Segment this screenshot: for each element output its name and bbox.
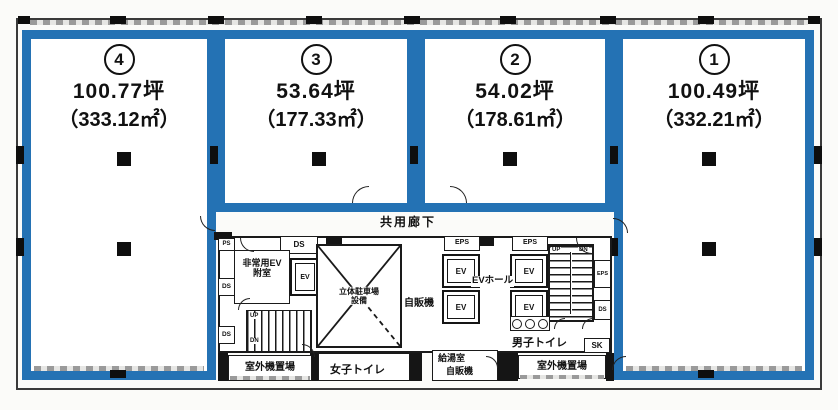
- mens-toilet-label: 男子トイレ: [512, 337, 567, 350]
- ds-shaft-right: DS: [594, 300, 611, 320]
- vending-machine-label: 自販機: [403, 298, 435, 310]
- wall-tick: [110, 16, 126, 24]
- pillar: [702, 152, 716, 166]
- stair-up-label: UP: [249, 313, 259, 319]
- washbasin: [525, 319, 535, 329]
- ps-shaft: PS: [218, 238, 235, 251]
- unit-3-tsubo: 53.64坪: [276, 80, 356, 104]
- wall-tick: [814, 238, 822, 256]
- kitchen-vending-label: 自販機: [446, 366, 473, 376]
- unit-1-tsubo: 100.49坪: [668, 80, 760, 104]
- ds-label: DS: [598, 307, 606, 314]
- emergency-ev-text: 非常用EV: [236, 258, 288, 268]
- sk-label: SK: [591, 341, 602, 350]
- parking-text-1: 立体駐車場: [339, 287, 379, 296]
- outdoor-yard-hatch: [520, 375, 604, 379]
- wall-tick: [16, 238, 24, 256]
- elevator-2: EV: [442, 290, 480, 324]
- womens-toilet-label: 女子トイレ: [330, 364, 385, 377]
- eps-label: EPS: [523, 239, 537, 247]
- pillar: [117, 242, 131, 256]
- wall-tick: [610, 146, 618, 164]
- wall-tick: [404, 16, 420, 24]
- eps-label: EPS: [455, 239, 469, 247]
- unit-4-tsubo: 100.77坪: [73, 80, 165, 104]
- wall-tick: [16, 146, 24, 164]
- unit-4-sqm: （333.12㎡）: [58, 109, 179, 132]
- stair-dn-label: DN: [249, 338, 260, 344]
- washbasin: [512, 319, 522, 329]
- stair-up-label: UP: [551, 247, 561, 253]
- wall-tick: [698, 370, 714, 378]
- wall-tick: [698, 16, 714, 24]
- eps-shaft-2: EPS: [512, 236, 548, 251]
- wall-tick: [210, 146, 218, 164]
- washbasin: [538, 319, 548, 329]
- washbasin-counter: [510, 316, 550, 331]
- ds-label: DS: [222, 283, 231, 290]
- stair-right-divider: [570, 252, 572, 314]
- wall-tick: [208, 16, 224, 24]
- eps-label: EPS: [597, 271, 608, 277]
- parking-equipment-shaft: 立体駐車場 設備: [316, 244, 402, 348]
- corridor-label: 共用廊下: [380, 216, 436, 230]
- unit-1-label: 1 100.49坪 （332.21㎡）: [614, 44, 814, 132]
- unit-1-number-badge: 1: [699, 44, 730, 75]
- wall-tick: [410, 146, 418, 164]
- ds-label: DS: [293, 240, 304, 249]
- wall-tick: [306, 16, 322, 24]
- wall-tick: [808, 16, 820, 24]
- unit-2-number-badge: 2: [500, 44, 531, 75]
- unit-4-number-badge: 4: [104, 44, 135, 75]
- pillar: [117, 152, 131, 166]
- core-wall-chunk: [498, 353, 518, 381]
- eps-shaft-1: EPS: [444, 236, 480, 251]
- unit-4-label: 4 100.77坪 （333.12㎡）: [22, 44, 216, 132]
- ds-label: DS: [222, 331, 231, 338]
- ps-label: PS: [222, 241, 230, 248]
- wall-tick: [600, 16, 616, 24]
- unit-2-tsubo: 54.02坪: [475, 80, 555, 104]
- vestibule-text: 附室: [236, 268, 288, 278]
- parking-equipment-label: 立体駐車場 設備: [338, 287, 380, 305]
- eps-shaft-right: EPS: [594, 260, 611, 288]
- outdoor-unit-yard-label: 室外機置場: [537, 361, 587, 373]
- elevator-label: EV: [515, 259, 543, 283]
- wall-tick: [18, 16, 30, 24]
- unit-1-sqm: （332.21㎡）: [653, 109, 774, 132]
- wall-tick: [500, 16, 516, 24]
- ev-hall-label: EVホール: [471, 276, 514, 287]
- wall-tick: [814, 146, 822, 164]
- elevator-label: EV: [447, 295, 475, 319]
- unit-1-bottom-hatch: [626, 366, 802, 371]
- elevator-label: EV: [295, 263, 315, 291]
- pillar: [702, 242, 716, 256]
- core-wall-chunk: [408, 353, 422, 381]
- wall-tick: [110, 370, 126, 378]
- outdoor-yard-hatch: [230, 376, 310, 380]
- unit-3-number-badge: 3: [301, 44, 332, 75]
- sk-closet: SK: [584, 338, 610, 353]
- ds-shaft-left-mid: DS: [218, 278, 235, 296]
- unit-3-sqm: （177.33㎡）: [255, 109, 376, 132]
- ds-shaft-left-low: DS: [218, 326, 235, 344]
- unit-2-sqm: （178.61㎡）: [454, 109, 575, 132]
- emergency-ev-vestibule-label: 非常用EV 附室: [236, 258, 288, 279]
- floorplan-canvas: 4 100.77坪 （333.12㎡） 3 53.64坪 （177.33㎡） 2…: [0, 0, 838, 410]
- elevator-3: EV: [510, 254, 548, 288]
- kitchenette-label: 給湯室: [438, 353, 465, 363]
- pillar: [312, 152, 326, 166]
- core-wall-chunk: [480, 236, 494, 246]
- parking-text-2: 設備: [339, 296, 379, 305]
- unit-3-label: 3 53.64坪 （177.33㎡）: [216, 44, 416, 132]
- core-wall-chunk: [218, 353, 228, 381]
- outdoor-unit-yard-label: 室外機置場: [245, 362, 295, 374]
- pillar: [503, 152, 517, 166]
- unit-2-label: 2 54.02坪 （178.61㎡）: [416, 44, 614, 132]
